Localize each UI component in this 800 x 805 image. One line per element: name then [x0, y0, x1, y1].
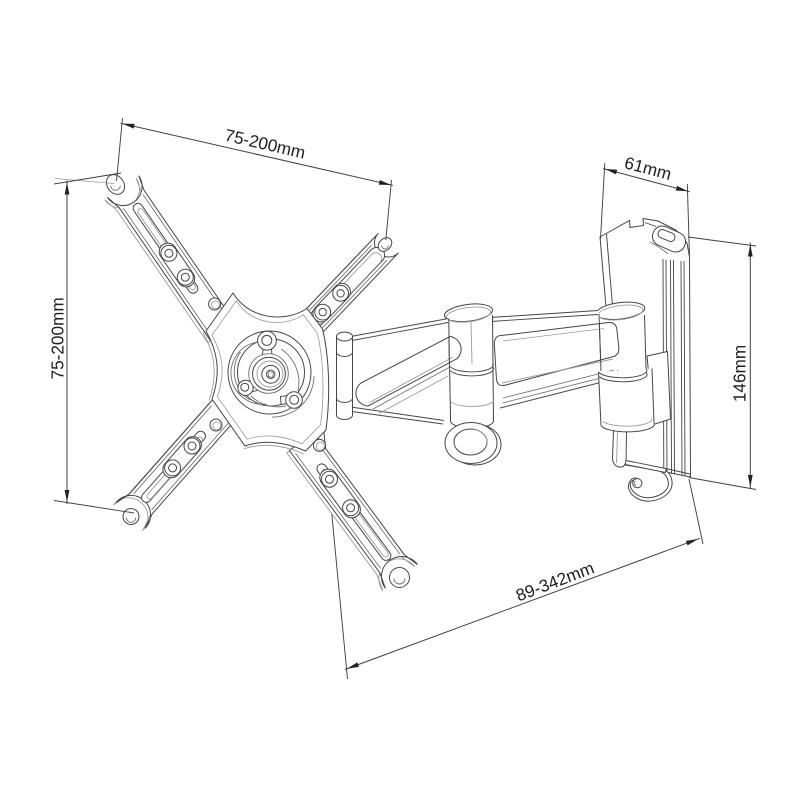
- svg-text:146mm: 146mm: [729, 345, 749, 402]
- svg-text:75-200mm: 75-200mm: [48, 297, 68, 379]
